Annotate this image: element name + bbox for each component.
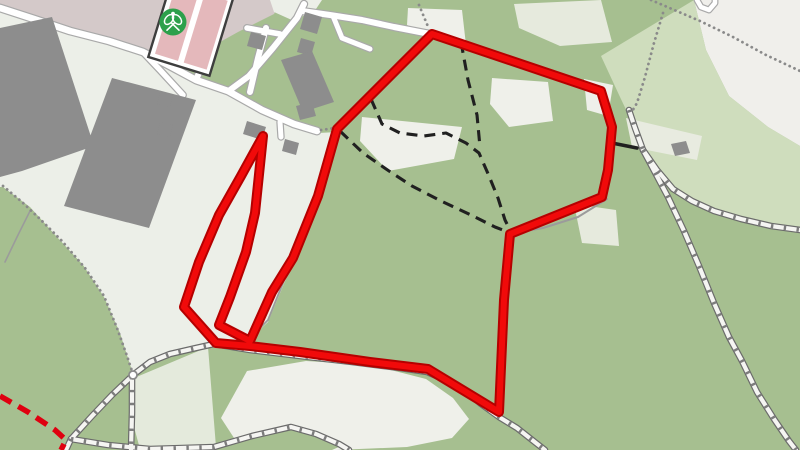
junction-node [129, 371, 137, 379]
tennis-icon[interactable] [160, 9, 187, 36]
map-svg [0, 0, 800, 450]
map-viewport[interactable] [0, 0, 800, 450]
